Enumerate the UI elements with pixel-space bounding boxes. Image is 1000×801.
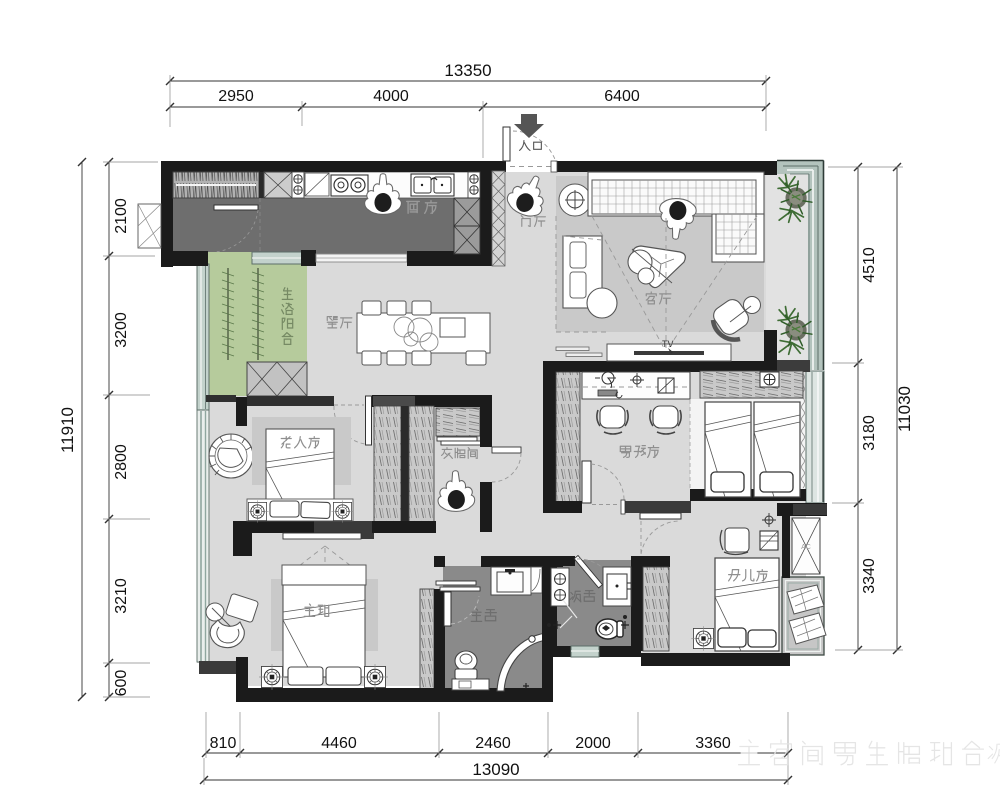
- svg-text:3360: 3360: [695, 735, 731, 752]
- svg-text:11030: 11030: [895, 386, 914, 432]
- svg-text:2800: 2800: [113, 444, 130, 480]
- svg-text:2460: 2460: [475, 735, 511, 752]
- svg-text:11910: 11910: [58, 407, 77, 453]
- svg-text:TV: TV: [662, 339, 674, 349]
- svg-text:3210: 3210: [113, 578, 130, 614]
- svg-text:3180: 3180: [861, 415, 878, 451]
- svg-text:13350: 13350: [444, 61, 491, 80]
- svg-text:AC: AC: [801, 544, 811, 551]
- svg-text:4000: 4000: [373, 88, 409, 105]
- svg-text:4510: 4510: [861, 247, 878, 283]
- svg-text:2100: 2100: [113, 198, 130, 234]
- svg-text:2000: 2000: [575, 735, 611, 752]
- svg-text:6400: 6400: [604, 88, 640, 105]
- svg-text:3200: 3200: [113, 312, 130, 348]
- svg-text:810: 810: [210, 735, 237, 752]
- svg-text:600: 600: [113, 670, 130, 697]
- svg-text:2950: 2950: [218, 88, 254, 105]
- svg-text:13090: 13090: [472, 760, 519, 779]
- svg-text:3340: 3340: [861, 558, 878, 594]
- svg-text:4460: 4460: [321, 735, 357, 752]
